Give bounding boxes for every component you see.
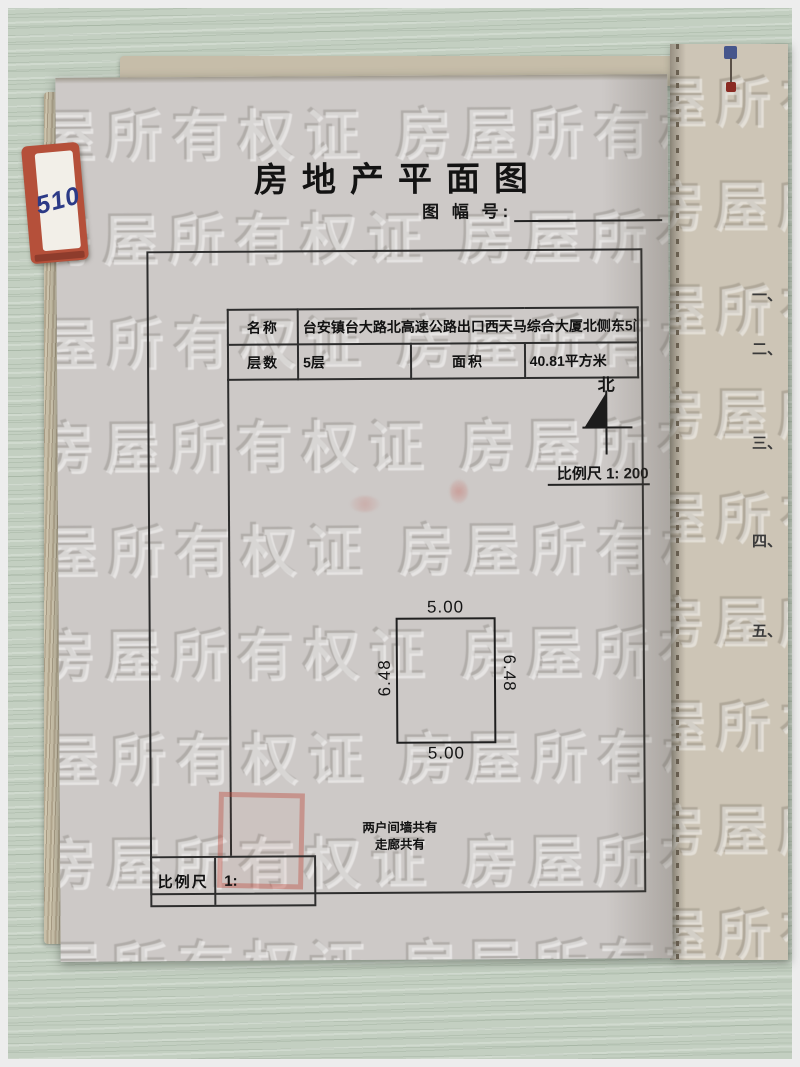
adjacent-page: 房屋所有权证 房屋所有权证 房屋所有权证 房屋所有权证 房屋所有权证 房屋所有权… (670, 44, 788, 960)
tab-sticker-fold (34, 251, 84, 262)
staple-dot-icon (726, 82, 736, 92)
floor-plan-rect (396, 617, 497, 744)
dimension-right: 6.48 (499, 651, 519, 695)
bottom-scale-table: 比例尺 1: (150, 855, 316, 907)
note-line-1: 两户间墙共有 (300, 819, 500, 837)
table-row: 名称 台安镇台大路北高速公路出口西天马综合大厦北侧东5间 (228, 307, 638, 345)
red-smudge (350, 496, 380, 512)
name-label-cell: 名称 (228, 309, 298, 344)
sheet-number-label: 图 幅 号: (422, 197, 512, 223)
page-title: 房地产平面图 (178, 150, 618, 202)
floors-value-cell: 5层 (298, 344, 412, 380)
dimension-top: 5.00 (395, 597, 495, 618)
list-item-5: 五、 (752, 620, 782, 641)
list-item-2: 二、 (752, 338, 782, 359)
floors-label-cell: 层数 (228, 344, 298, 379)
shared-wall-note: 两户间墙共有 走廊共有 (300, 819, 500, 854)
document-page: 房屋所有权证 房屋所有权证 房屋所有权证 房屋所有权证 房屋所有权证 房屋所有权… (55, 74, 672, 962)
photo-frame: 房屋所有权证 房屋所有权证 房屋所有权证 房屋所有权证 房屋所有权证 房屋所有权… (0, 0, 800, 1067)
tab-sticker-inner: 510 (35, 150, 81, 251)
list-item-3: 三、 (752, 432, 782, 453)
watermark-layer: 房屋所有权证 房屋所有权证 房屋所有权证 房屋所有权证 房屋所有权证 房屋所有权… (670, 44, 788, 960)
list-item-4: 四、 (752, 530, 782, 551)
page-gutter-shade (601, 74, 672, 958)
bottom-scale-value: 1: (216, 857, 314, 905)
red-smudge (450, 479, 468, 503)
tab-sticker: 510 (21, 142, 89, 265)
binding-stitches-icon (676, 44, 679, 960)
bottom-scale-label: 比例尺 (152, 858, 216, 905)
tab-sticker-number: 510 (32, 181, 83, 221)
dimension-bottom: 5.00 (396, 743, 496, 764)
name-value-cell: 台安镇台大路北高速公路出口西天马综合大厦北侧东5间 (298, 307, 638, 344)
staple-stem-icon (730, 58, 732, 84)
note-line-2: 走廊共有 (300, 836, 500, 854)
list-item-1: 一、 (752, 284, 782, 305)
area-label-cell: 面积 (411, 343, 525, 379)
table-row: 层数 5层 面积 40.81平方米 (228, 342, 638, 380)
dimension-left: 6.48 (375, 656, 395, 700)
info-table: 名称 台安镇台大路北高速公路出口西天马综合大厦北侧东5间 层数 5层 面积 40… (227, 306, 639, 381)
